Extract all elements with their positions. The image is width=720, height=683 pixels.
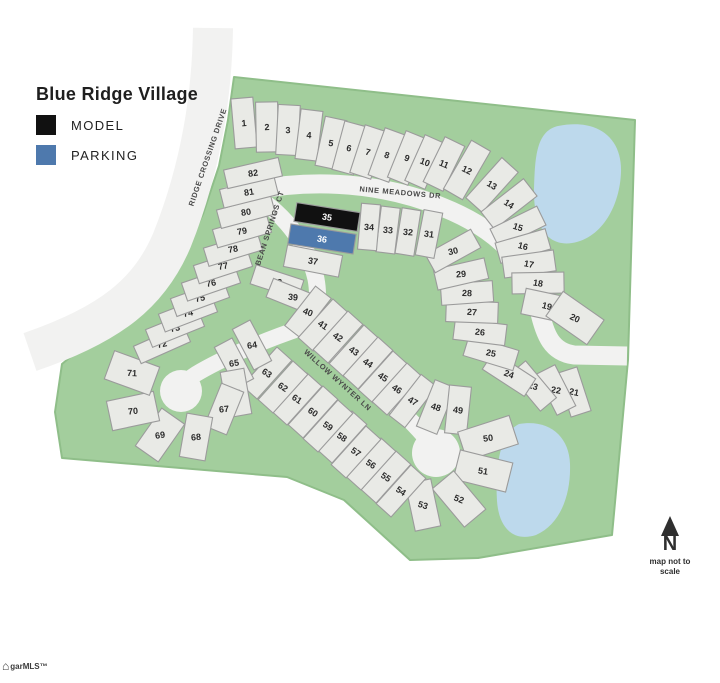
north-letter: N [646,534,694,554]
lot-number-80: 80 [240,206,251,217]
legend-label-model: MODEL [71,118,124,133]
lot-number-17: 17 [523,258,535,270]
legend-item-parking: PARKING [36,145,198,165]
legend-item-model: MODEL [36,115,198,135]
lot-number-50: 50 [482,433,493,444]
lot-number-82: 82 [247,168,258,179]
lot-number-32: 32 [403,227,414,238]
watermark-text: garMLS™ [10,662,47,671]
lot-number-33: 33 [383,225,394,236]
lot-number-68: 68 [191,432,202,443]
lot-number-65: 65 [228,358,239,369]
lot-number-70: 70 [128,406,139,417]
north-indicator: N map not to scale [646,516,694,576]
lot-number-79: 79 [236,225,248,237]
page-title: Blue Ridge Village [36,84,198,105]
lot-number-25: 25 [485,347,497,359]
mls-watermark: ⌂ garMLS™ [2,660,48,672]
model-swatch [36,115,56,135]
legend: MODEL PARKING [36,115,198,165]
lot-number-29: 29 [456,269,467,280]
lot-number-67: 67 [219,404,230,415]
lot-number-36: 36 [316,233,327,244]
lot-number-69: 69 [154,430,165,441]
lot-number-35: 35 [321,211,332,222]
lot-number-37: 37 [307,255,318,266]
lot-number-1: 1 [241,118,247,128]
lot-number-31: 31 [423,229,434,240]
house-icon: ⌂ [2,660,9,672]
lot-number-26: 26 [474,327,485,338]
lot-number-18: 18 [532,277,543,288]
lot-number-27: 27 [467,307,478,318]
lot-number-81: 81 [243,186,254,197]
parking-swatch [36,145,56,165]
lot-number-2: 2 [264,122,270,132]
cul-de-sac-bulb [160,370,202,412]
map-header: Blue Ridge Village MODEL PARKING [36,84,198,165]
lot-number-3: 3 [285,125,290,135]
lot-number-34: 34 [364,222,375,233]
lot-number-28: 28 [462,288,472,298]
legend-label-parking: PARKING [71,148,138,163]
cul-de-sac-bulb [412,429,460,477]
lot-number-49: 49 [452,405,463,416]
lot-number-71: 71 [127,368,138,379]
lot-number-51: 51 [477,466,488,477]
lot-number-4: 4 [306,130,312,140]
plat-map-page: 1234567891011121314151617181920212223242… [0,0,720,683]
lot-number-39: 39 [287,292,298,303]
map-scale-note: map not to scale [646,557,694,576]
lot-number-64: 64 [246,340,257,351]
